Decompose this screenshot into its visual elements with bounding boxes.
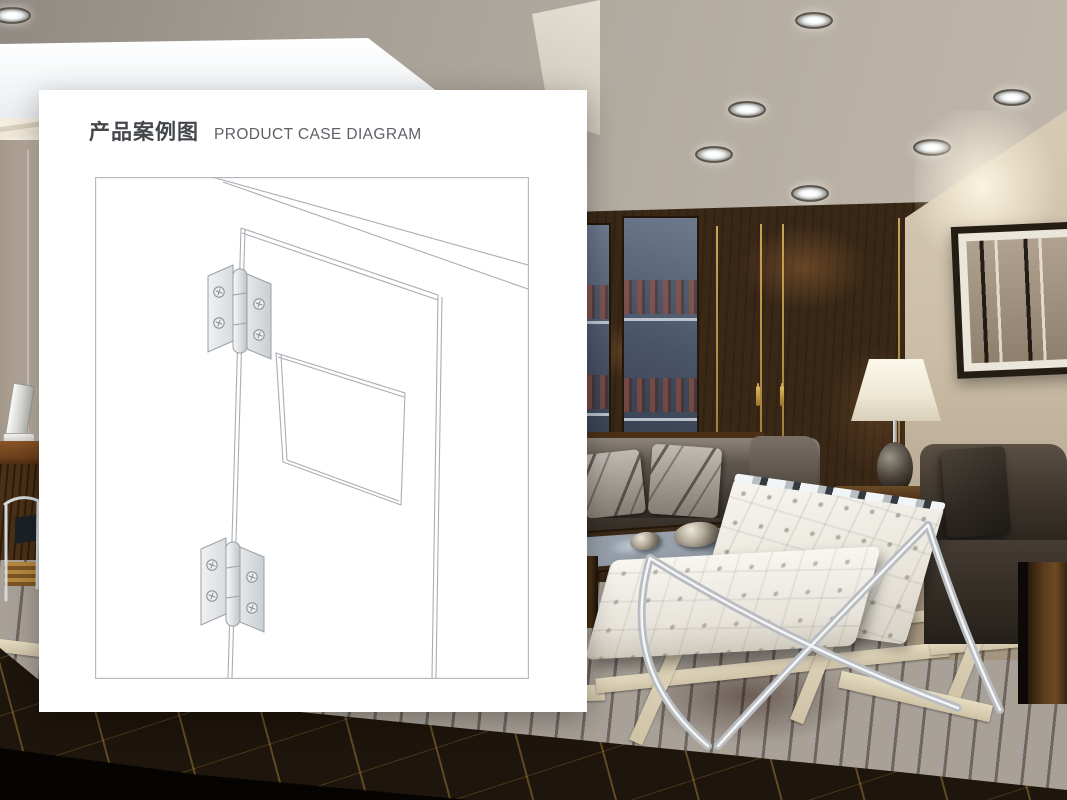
barcelona-chair-seat xyxy=(585,546,881,660)
door-handle xyxy=(756,386,760,406)
card-title-zh: 产品案例图 xyxy=(89,116,199,146)
ceiling-spotlight xyxy=(993,89,1031,106)
wood-side-table xyxy=(1028,562,1067,704)
door-handle xyxy=(780,386,784,406)
card-title: 产品案例图 PRODUCT CASE DIAGRAM xyxy=(89,116,422,146)
armchair-pillow xyxy=(941,446,1011,538)
ceiling-spotlight xyxy=(791,185,829,202)
framed-wall-art xyxy=(951,221,1067,379)
product-case-card: 产品案例图 PRODUCT CASE DIAGRAM xyxy=(39,90,587,712)
door-hinge-diagram xyxy=(95,177,529,679)
screenshot-root: 产品案例图 PRODUCT CASE DIAGRAM xyxy=(0,0,1067,800)
ceiling-spotlight xyxy=(728,101,766,118)
desk-top xyxy=(0,441,42,465)
sofa-pillow xyxy=(580,449,646,519)
ceiling-spotlight xyxy=(795,12,833,29)
card-title-en: PRODUCT CASE DIAGRAM xyxy=(214,126,422,144)
sofa-pillow xyxy=(648,444,723,519)
ceiling-spotlight xyxy=(695,146,733,163)
